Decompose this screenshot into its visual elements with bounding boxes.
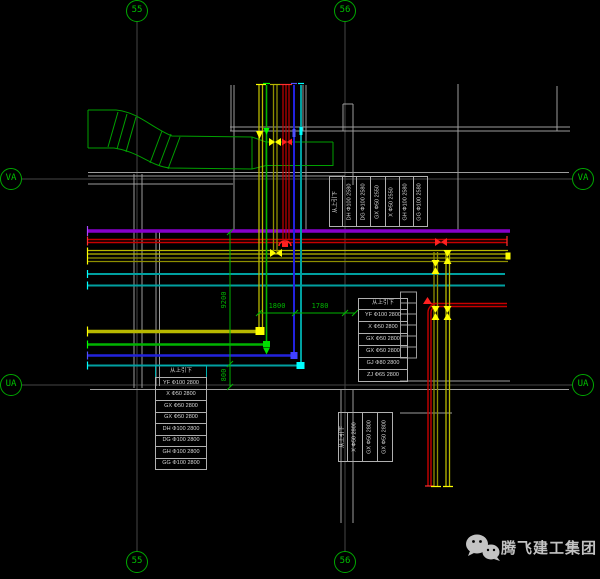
wall-top-band	[230, 127, 570, 131]
yellow-valve-riser-4	[444, 306, 452, 320]
pipe-label-cell: GX Φ50 2800	[377, 412, 393, 462]
pipe-label-cell: DH Φ100 2580	[342, 176, 357, 227]
wechat-eye	[479, 540, 482, 543]
duct-bottom-edge	[88, 148, 333, 169]
pipe-label-text: GX Φ50 2800	[366, 337, 400, 343]
olive-riser-right-pair	[434, 252, 438, 486]
pipe-label-text: GJ Φ80 2800	[367, 361, 400, 367]
green-down-arrow	[263, 348, 270, 355]
pipe-label-text: X Φ50 2800	[368, 325, 397, 331]
grid-label: UA	[6, 379, 17, 389]
air-duct	[88, 110, 333, 169]
grid-bubble-56-top: 56	[334, 0, 356, 22]
pipe-label-text: X Φ50 2550	[389, 187, 395, 216]
pipe-label-text: GX Φ50 2800	[164, 404, 198, 410]
red-trap-body	[282, 242, 288, 247]
yellow-valve-top	[269, 138, 281, 146]
drawing-layer	[0, 0, 600, 579]
pipe-table-header-text: 从上引下	[333, 190, 339, 212]
pipe-label-text: GX Φ50 2550	[375, 185, 381, 219]
pipe-label-cell: GX Φ50 2800	[362, 412, 378, 462]
pipe-label-text: GX Φ50 2800	[164, 415, 198, 421]
yellow-valve-riser-2	[444, 250, 452, 264]
grid-label: VA	[578, 173, 589, 183]
pipe-label-row: ZJ Φ65 2800	[358, 369, 408, 382]
yellow-riser-pair	[259, 85, 263, 330]
olive-pipe-pair-upper	[88, 258, 508, 262]
pipe-label-text: YF Φ100 2800	[163, 381, 199, 387]
pipe-label-text: DG Φ100 2580	[361, 183, 367, 220]
cyan-corner-marker	[297, 362, 305, 369]
dimension-label-9200: 9200	[220, 282, 228, 318]
grid-label: UA	[578, 379, 589, 389]
pipe-label-text: GX Φ50 2800	[366, 349, 400, 355]
pipe-table-header-text: 从上引下	[170, 369, 192, 375]
wall-columns-right	[458, 84, 557, 232]
grid-bubble-55-top: 55	[126, 0, 148, 22]
red-elbow-arrow	[423, 297, 432, 304]
grid-bubble-va-right: VA	[572, 168, 594, 190]
pipe-table-header-cell: 从上引下	[329, 176, 343, 227]
grid-bubble-ua-left: UA	[0, 374, 22, 396]
wechat-eye	[487, 549, 489, 551]
yellow-pipe-end-marker	[506, 253, 511, 260]
dimension-label-1780: 1780	[305, 302, 335, 310]
pipe-table-left: 从上引下 YF Φ100 2800 X Φ50 2800 GX Φ50 2800…	[155, 365, 207, 470]
pipe-label-cell: X Φ50 2550	[385, 176, 400, 227]
green-corner-marker	[263, 341, 270, 347]
pipe-label-cell: GG Φ100 2580	[413, 176, 428, 227]
grid-label: 56	[340, 5, 351, 15]
red-riser-triple	[283, 85, 289, 240]
pipe-label-text: GX Φ50 2800	[367, 420, 373, 454]
grid-label: VA	[6, 173, 17, 183]
grid-bubble-va-left: VA	[0, 168, 22, 190]
red-riser-right-pair	[428, 313, 431, 487]
pipe-label-text: DH Φ100 2800	[163, 427, 200, 433]
wechat-eye	[493, 549, 495, 551]
pipe-table-header-text: 从上引下	[372, 301, 394, 307]
dimension-label-800: 800	[220, 357, 228, 393]
pipe-label-cell: GH Φ100 2580	[399, 176, 414, 227]
pipe-label-text: ZJ Φ65 2800	[367, 373, 399, 379]
pipe-table-right: 从上引下 YF Φ100 2800 X Φ50 2800 GX Φ50 2800…	[358, 298, 408, 382]
pipe-label-cell: GX Φ50 2550	[370, 176, 385, 227]
grid-bubble-ua-right: UA	[572, 374, 594, 396]
pipe-end-ticks-left	[88, 226, 508, 370]
pipe-label-text: X Φ50 2800	[352, 422, 358, 451]
red-valve-top	[282, 139, 292, 146]
pipe-label-text: GH Φ100 2800	[162, 450, 199, 456]
pipe-label-text: DH Φ100 2580	[347, 183, 353, 220]
pipe-label-text: GH Φ100 2580	[404, 183, 410, 220]
pipe-table-header-text: 从上引下	[340, 426, 346, 448]
pipe-label-text: GG Φ100 2800	[162, 461, 199, 467]
yellow-valve-riser-3	[432, 306, 440, 320]
pipe-table-top: 从上引下 DH Φ100 2580 DG Φ100 2580 GX Φ50 25…	[329, 176, 428, 227]
yellow-corner-marker	[256, 327, 265, 335]
blue-corner-marker	[291, 352, 298, 359]
grid-label: 55	[132, 556, 143, 566]
yellow-valve-riser-1	[432, 260, 440, 274]
duct-flex-hatching	[108, 112, 266, 169]
pipe-label-text: GG Φ100 2580	[418, 183, 424, 220]
olive-riser-pair	[274, 85, 278, 252]
grid-bubble-55-bottom: 55	[126, 551, 148, 573]
watermark-text: 腾飞建工集团	[501, 537, 597, 558]
pipe-label-text: YF Φ100 2800	[365, 313, 401, 319]
dimension-label-1800: 1800	[262, 302, 292, 310]
pipe-label-text: GX Φ50 2800	[382, 420, 388, 454]
cad-drawing-canvas: 55 56 55 56 VA VA UA UA 从上引下 DH Φ100 258…	[0, 0, 600, 579]
pipe-label-row: GG Φ100 2800	[155, 458, 207, 471]
red-pipe-lower	[430, 304, 507, 307]
pipe-label-text: X Φ50 2800	[166, 392, 195, 398]
wechat-eye	[472, 540, 475, 543]
duct-top-edge	[88, 110, 333, 142]
pipe-label-cell: DG Φ100 2580	[356, 176, 371, 227]
center-riser-bundle	[256, 84, 304, 366]
pipe-table-bottom: 从上引下 X Φ50 2800 GX Φ50 2800 GX Φ50 2800	[338, 412, 393, 462]
pipe-label-cell: X Φ50 2800	[347, 412, 363, 462]
grid-label: 56	[340, 556, 351, 566]
pipe-label-text: DG Φ100 2800	[162, 438, 199, 444]
grid-label: 55	[132, 5, 143, 15]
grid-bubble-56-bottom: 56	[334, 551, 356, 573]
